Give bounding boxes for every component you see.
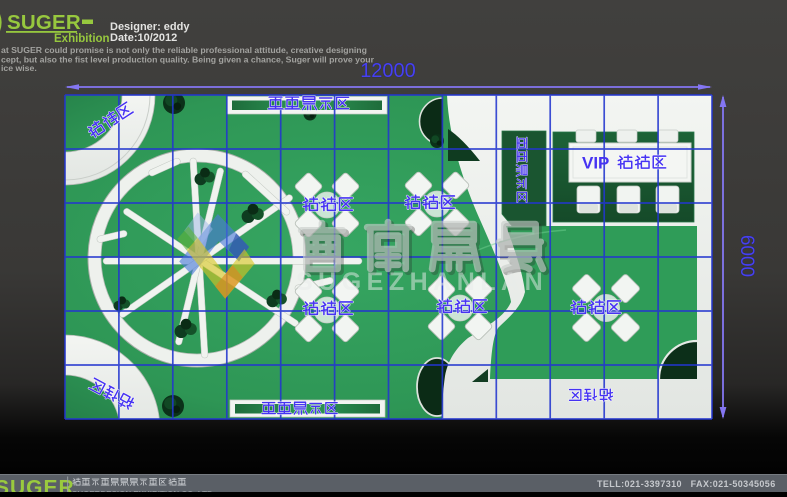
svg-text:6000: 6000 [736, 235, 757, 277]
svg-text:ice wise.: ice wise. [1, 63, 37, 73]
svg-text:cept, but also the fist level: cept, but also the fist level production… [1, 55, 375, 65]
svg-text:Exhibition: Exhibition [54, 33, 110, 45]
svg-text:SUGER: SUGER [0, 477, 75, 493]
svg-text:at SUGER could promise is not: at SUGER could promise is not only the r… [1, 45, 367, 55]
svg-text:Date:10/2012: Date:10/2012 [110, 32, 177, 44]
svg-text:SUGEZHANLAN: SUGEZHANLAN [296, 268, 548, 296]
svg-text:TELL:021-3397310 FAX:021-503: TELL:021-3397310 FAX:021-50345056 [597, 479, 776, 489]
svg-text:VIP: VIP [582, 154, 609, 173]
svg-text:SUGER: SUGER [7, 11, 81, 34]
